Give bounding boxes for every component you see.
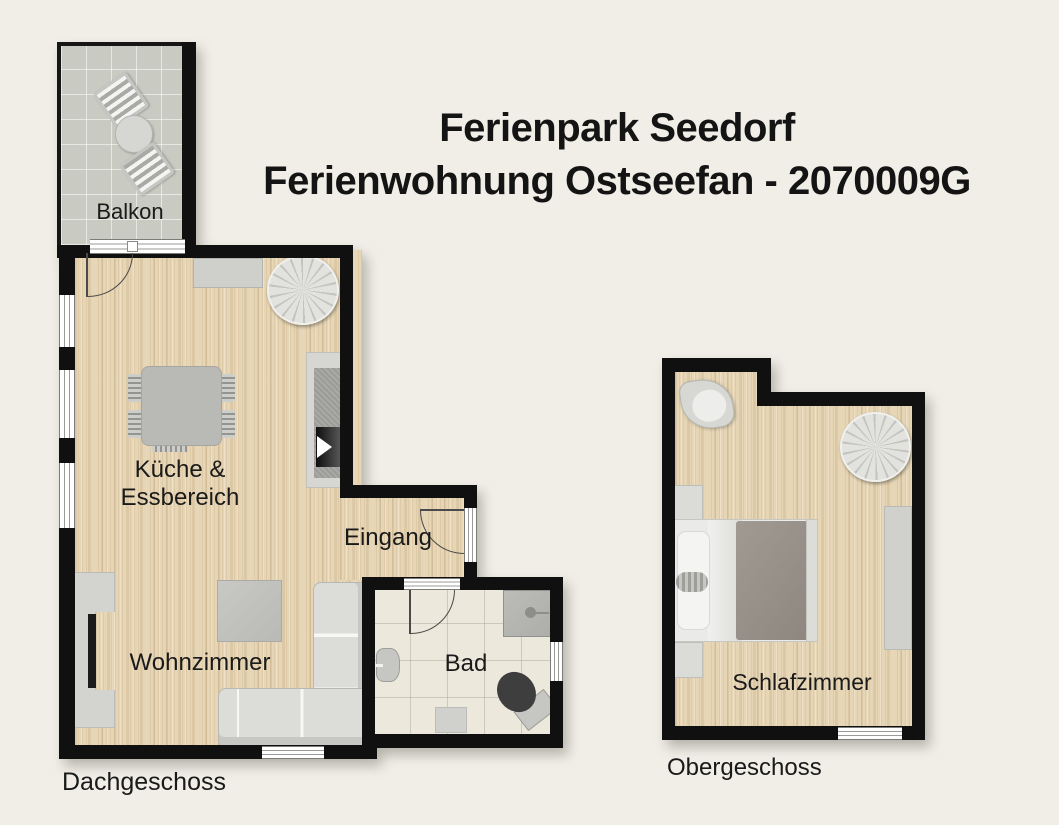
nightstand (671, 485, 703, 523)
armchair-cushion (690, 387, 728, 423)
bed-duvet (736, 521, 808, 640)
wall-og-right (912, 392, 925, 740)
wall-og-top-right (757, 392, 925, 406)
wall-og-top-left (662, 358, 771, 372)
bed-bolster (676, 572, 708, 592)
nightstand (671, 642, 703, 678)
wall-og-left (662, 358, 675, 740)
floor-plan-obergeschoss (0, 0, 1059, 825)
bed-footboard (806, 519, 818, 642)
window-og-bottom (838, 727, 902, 740)
bedroom-dresser (884, 506, 912, 650)
spiral-staircase-og (840, 412, 911, 482)
